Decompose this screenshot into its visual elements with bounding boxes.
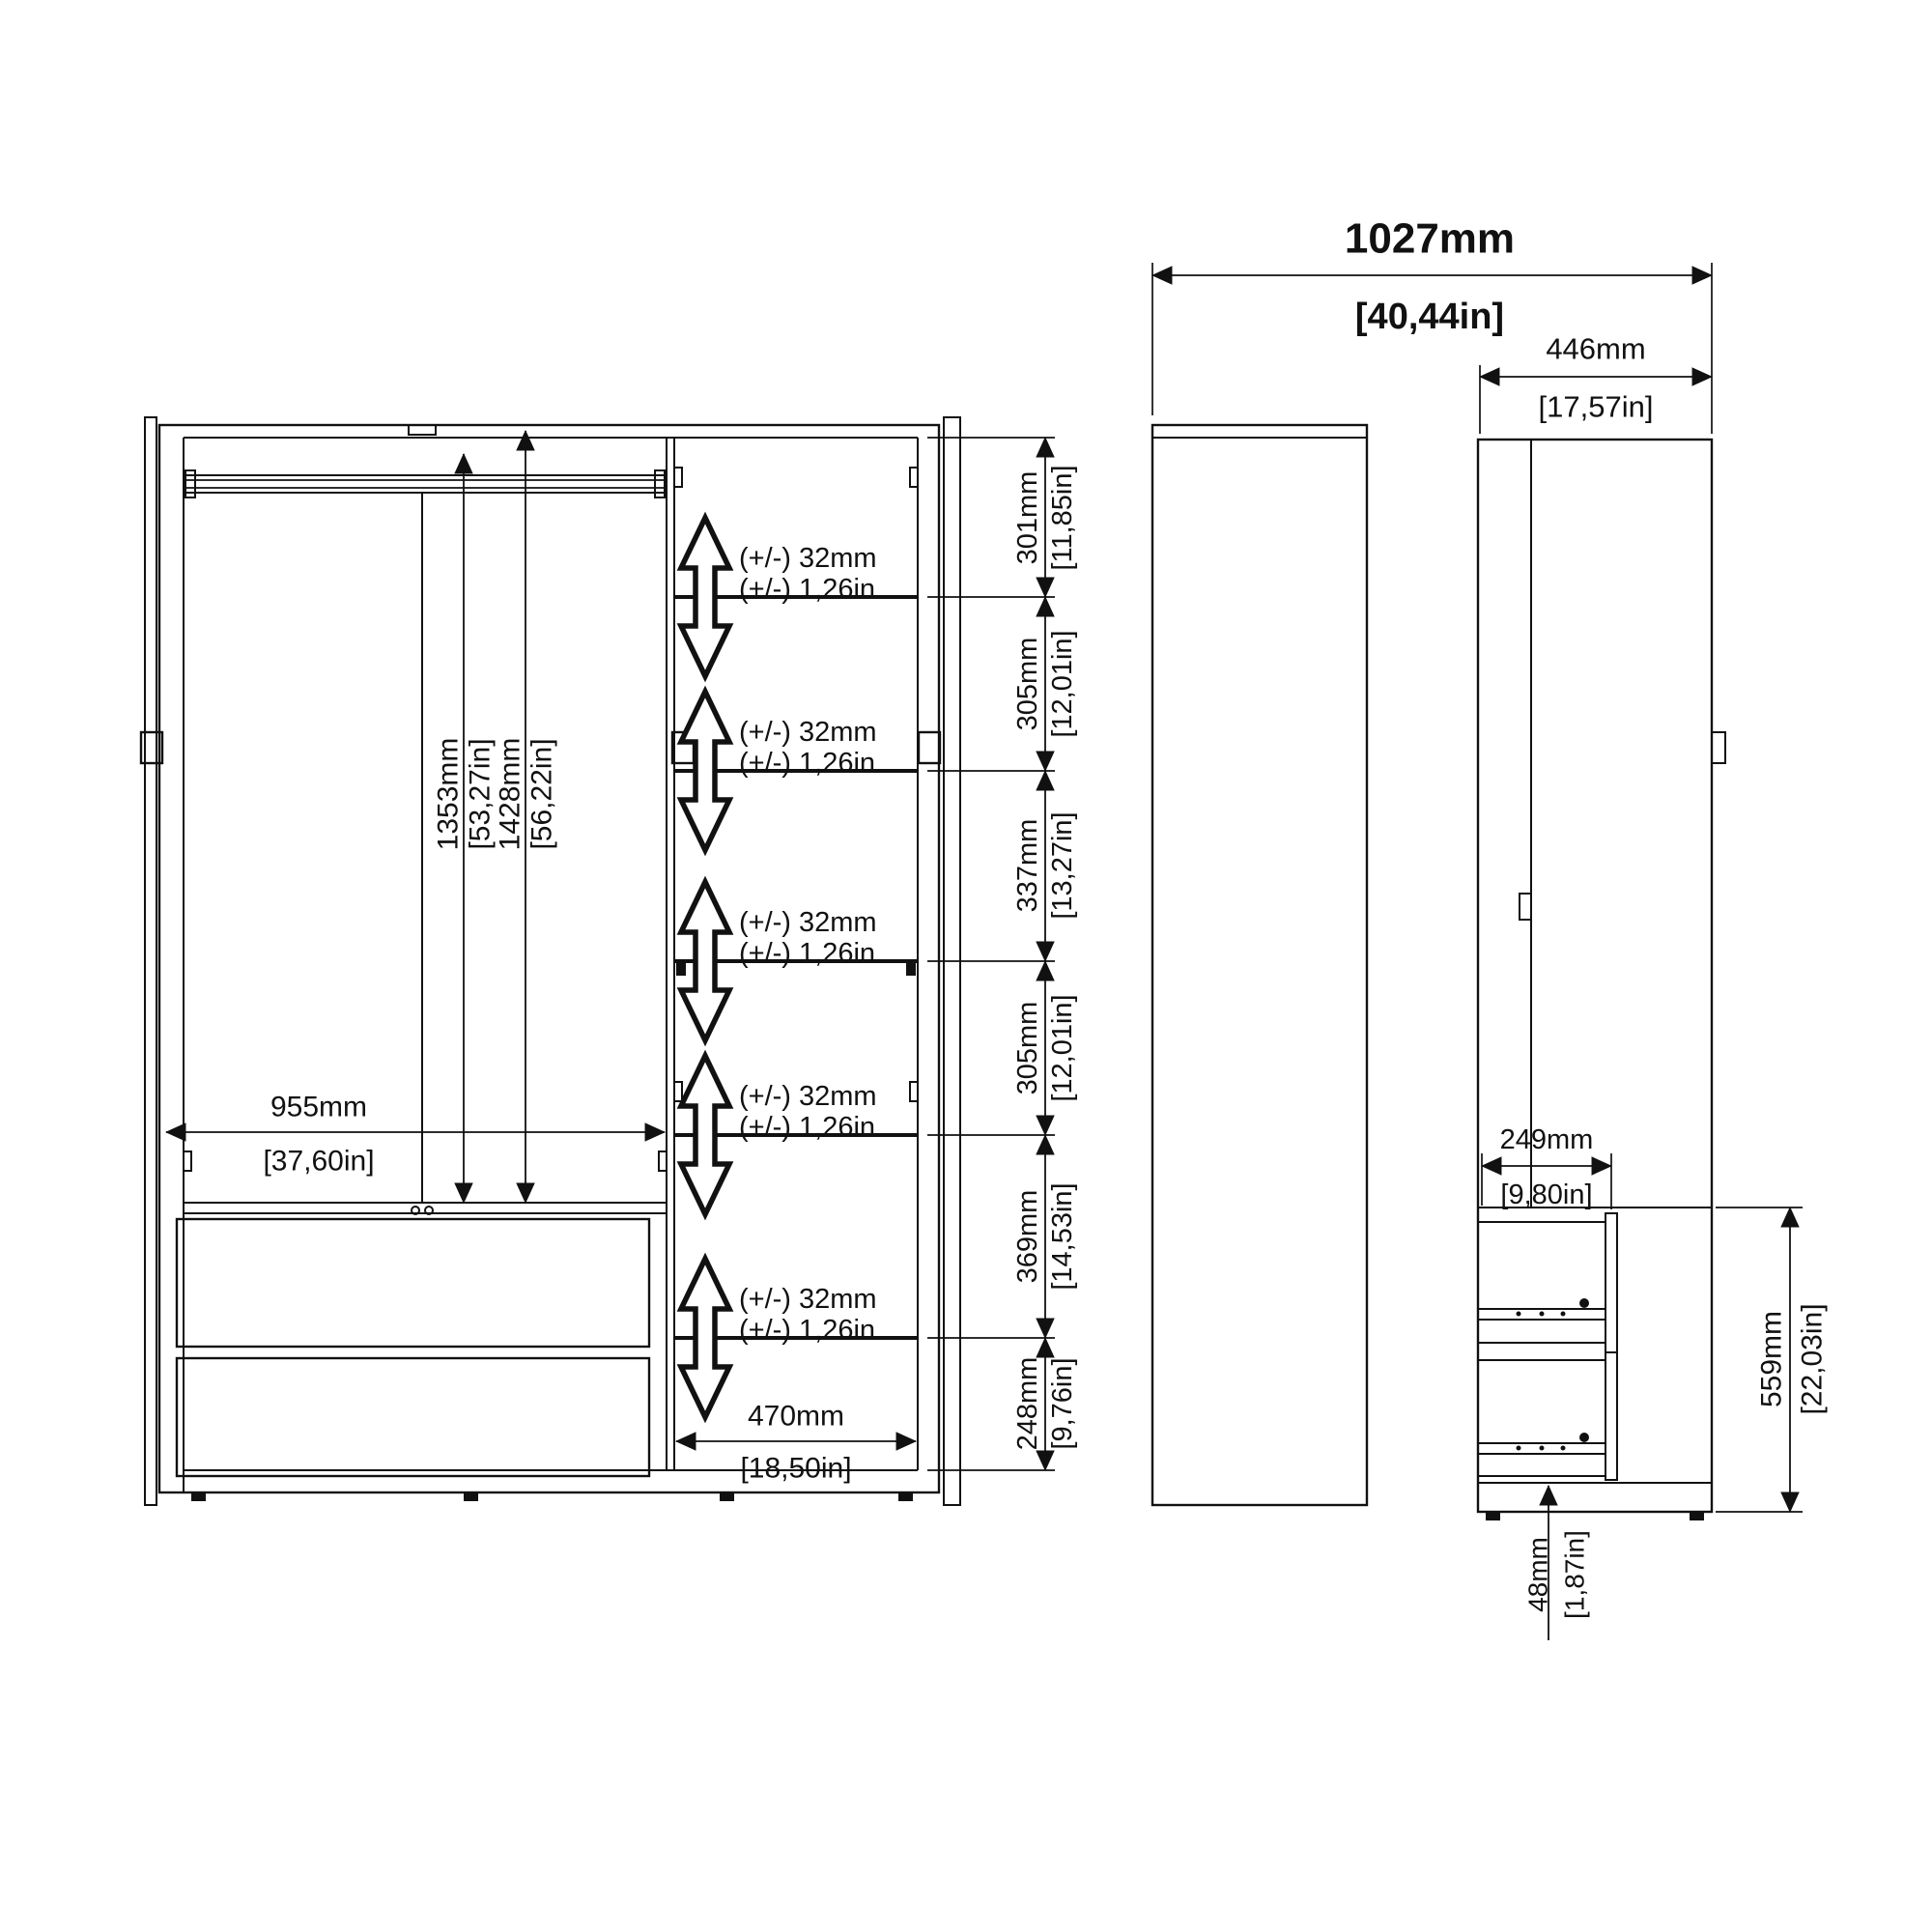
front-left-door-edge: [145, 417, 156, 1505]
dim-249-mm: 249mm: [1500, 1124, 1594, 1155]
side-cabinet-body: [1478, 440, 1725, 1520]
gap-1-in: [11,85in]: [1047, 465, 1078, 570]
adjustable-note-in: (+/-) 1,26in: [739, 1112, 875, 1143]
dim-1428-mm: 1428mm: [495, 738, 526, 851]
adjustable-note-in: (+/-) 1,26in: [739, 748, 875, 779]
runner-wheel-icon: [1579, 1298, 1589, 1308]
drawer-front-side-1: [1605, 1213, 1617, 1352]
wardrobe-dimension-drawing: (+/-) 32mm (+/-) 1,26in (+/-) 32mm (+/-)…: [0, 0, 1932, 1932]
foot: [720, 1492, 734, 1501]
gap-5-in: [14,53in]: [1047, 1182, 1078, 1290]
front-top-bracket: [409, 425, 436, 435]
gap-4-mm: 305mm: [1012, 1002, 1043, 1095]
gap-6-in: [9,76in]: [1047, 1357, 1078, 1449]
shelf-bracket: [676, 963, 686, 976]
dim-1027-in: [40,44in]: [1355, 297, 1504, 337]
runner-wheel-icon: [1579, 1433, 1589, 1442]
hinge-icon: [1712, 732, 1725, 763]
foot: [1690, 1512, 1704, 1520]
dim-interior-heights: 1353mm [53,27in] 1428mm [56,22in]: [433, 431, 558, 1203]
dim-shelf-column-width: 470mm [18,50in]: [676, 1401, 916, 1485]
gap-2-mm: 305mm: [1012, 638, 1043, 731]
dim-1353-mm: 1353mm: [433, 738, 465, 851]
hinge-icon: [659, 1151, 667, 1171]
hanging-compartment: [184, 470, 667, 1214]
drawer-front-1: [177, 1219, 649, 1347]
dim-shelf-spacing-chain: 301mm [11,85in] 305mm [12,01in] 337mm [1…: [927, 438, 1078, 1470]
adjustable-note-in: (+/-) 1,26in: [739, 1315, 875, 1346]
foot: [1486, 1512, 1500, 1520]
gap-1-mm: 301mm: [1012, 471, 1043, 565]
hinge-icon: [910, 1082, 918, 1101]
side-cabinet-outline: [1478, 440, 1712, 1512]
adjustable-note-in: (+/-) 1,26in: [739, 938, 875, 969]
dim-446-mm: 446mm: [1546, 332, 1645, 366]
gap-6-mm: 248mm: [1012, 1357, 1043, 1451]
gap-5-mm: 369mm: [1012, 1190, 1043, 1284]
dim-plinth-height: 48mm [1,87in]: [1523, 1486, 1590, 1640]
door-handle-icon: [1520, 894, 1531, 920]
dim-559-in: [22,03in]: [1797, 1303, 1829, 1414]
adjustable-note-mm: (+/-) 32mm: [739, 1284, 877, 1315]
dim-1027-mm: 1027mm: [1345, 215, 1515, 263]
shelf-bracket: [906, 963, 916, 976]
drawer-front-side-2: [1605, 1352, 1617, 1480]
side-view: 1027mm [40,44in] 446mm [17,57in] 249mm […: [1152, 215, 1829, 1641]
foot: [191, 1492, 206, 1501]
front-drawers: [177, 1219, 649, 1476]
dim-955-mm: 955mm: [270, 1092, 367, 1123]
dim-48-mm: 48mm: [1523, 1537, 1553, 1612]
dim-1353-in: [53,27in]: [465, 738, 497, 849]
gap-2-in: [12,01in]: [1047, 630, 1078, 737]
adjustable-shelf-notes: (+/-) 32mm (+/-) 1,26in (+/-) 32mm (+/-)…: [681, 518, 877, 1417]
foot: [898, 1492, 913, 1501]
front-view: (+/-) 32mm (+/-) 1,26in (+/-) 32mm (+/-)…: [141, 417, 1078, 1505]
dim-opening-width: 955mm [37,60in]: [166, 1092, 665, 1178]
dim-470-in: [18,50in]: [740, 1453, 851, 1485]
gap-4-in: [12,01in]: [1047, 994, 1078, 1101]
dim-470-mm: 470mm: [748, 1401, 844, 1433]
adjustable-note-mm: (+/-) 32mm: [739, 1081, 877, 1112]
hinge-icon: [910, 468, 918, 487]
adjustable-note-mm: (+/-) 32mm: [739, 907, 877, 938]
dim-48-in: [1,87in]: [1560, 1530, 1590, 1619]
gap-3-in: [13,27in]: [1047, 811, 1078, 919]
dim-drawer-zone-height: 559mm [22,03in]: [1716, 1207, 1829, 1512]
dim-446-in: [17,57in]: [1539, 390, 1654, 424]
dim-drawer-depth: 249mm [9,80in]: [1482, 1124, 1611, 1210]
side-open-door: [1152, 425, 1367, 1505]
dim-559-mm: 559mm: [1756, 1311, 1788, 1407]
adjustable-note-mm: (+/-) 32mm: [739, 543, 877, 574]
side-door-outline: [1152, 425, 1367, 1505]
hinge-icon: [674, 468, 682, 487]
hinge-icon: [674, 1082, 682, 1101]
dim-955-in: [37,60in]: [263, 1146, 374, 1178]
gap-3-mm: 337mm: [1012, 819, 1043, 913]
hinge-icon: [919, 732, 940, 763]
adjustable-note-mm: (+/-) 32mm: [739, 717, 877, 748]
foot: [464, 1492, 478, 1501]
drawer-front-2: [177, 1358, 649, 1476]
side-drawers: [1478, 1213, 1617, 1480]
dim-249-in: [9,80in]: [1500, 1179, 1592, 1210]
adjustable-note-in: (+/-) 1,26in: [739, 574, 875, 605]
dim-1428-in: [56,22in]: [526, 738, 558, 849]
hinge-icon: [184, 1151, 191, 1171]
dim-cabinet-depth: 446mm [17,57in]: [1480, 332, 1712, 435]
